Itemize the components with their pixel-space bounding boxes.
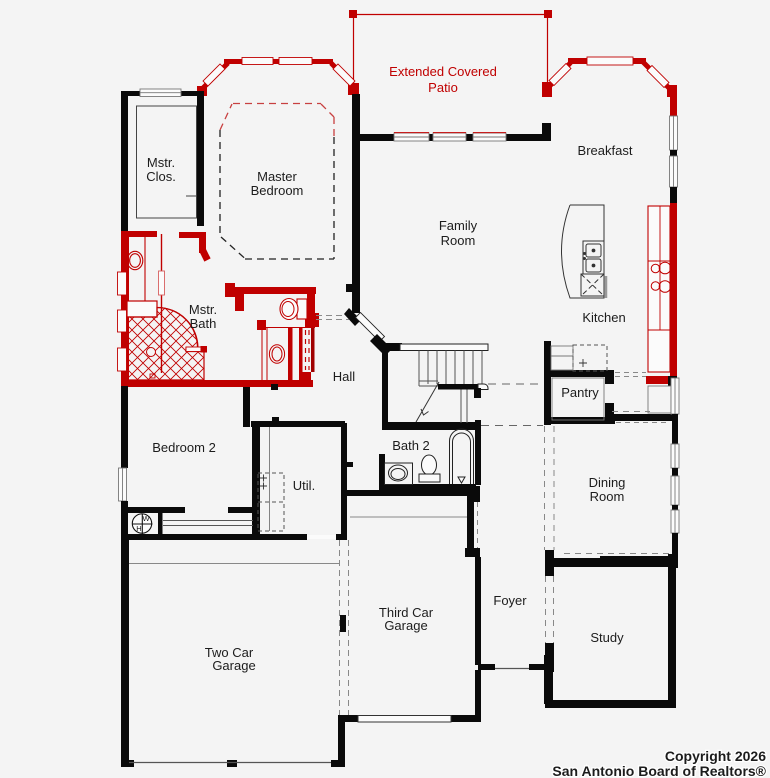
- svg-text:Bath 2: Bath 2: [392, 438, 430, 453]
- svg-text:Room: Room: [590, 489, 625, 504]
- svg-text:Bedroom: Bedroom: [251, 183, 304, 198]
- svg-text:Room: Room: [441, 233, 476, 248]
- svg-text:Garage: Garage: [384, 618, 427, 633]
- svg-text:Study: Study: [590, 630, 624, 645]
- svg-text:Util.: Util.: [293, 478, 315, 493]
- svg-text:Copyright 2026: Copyright 2026: [665, 748, 766, 764]
- svg-text:W: W: [142, 514, 150, 523]
- svg-text:Extended Covered: Extended Covered: [389, 64, 497, 79]
- svg-text:H: H: [136, 524, 141, 533]
- svg-text:Breakfast: Breakfast: [578, 143, 633, 158]
- svg-text:Mstr.: Mstr.: [147, 155, 175, 170]
- svg-text:Hall: Hall: [333, 369, 356, 384]
- svg-text:Patio: Patio: [428, 80, 458, 95]
- svg-text:Master: Master: [257, 169, 297, 184]
- svg-text:Clos.: Clos.: [146, 169, 176, 184]
- svg-text:Family: Family: [439, 218, 478, 233]
- svg-text:Bedroom 2: Bedroom 2: [152, 440, 216, 455]
- svg-text:Bath: Bath: [190, 316, 217, 331]
- svg-text:Kitchen: Kitchen: [582, 310, 625, 325]
- svg-text:Garage: Garage: [212, 658, 255, 673]
- svg-text:Foyer: Foyer: [493, 593, 527, 608]
- svg-text:Pantry: Pantry: [561, 385, 599, 400]
- svg-text:San Antonio Board of Realtors®: San Antonio Board of Realtors®: [552, 763, 766, 778]
- svg-text:Mstr.: Mstr.: [189, 302, 217, 317]
- svg-text:Dining: Dining: [589, 475, 626, 490]
